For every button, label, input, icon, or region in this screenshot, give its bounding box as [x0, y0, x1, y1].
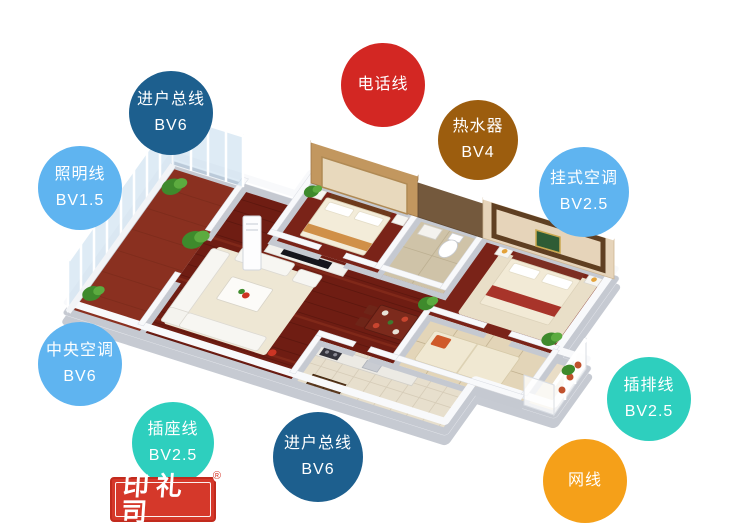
badge-label: 进户总线: [137, 92, 205, 108]
badge-label: BV2.5: [149, 448, 198, 464]
badge-label: 电话线: [357, 77, 408, 93]
badge-layer: 进户总线BV6照明线BV1.5电话线热水器BV4挂式空调BV2.5中央空调BV6…: [0, 0, 737, 530]
badge-label: 照明线: [54, 167, 105, 183]
badge-central-ac: 中央空调BV6: [38, 322, 122, 406]
badge-label: 进户总线: [284, 436, 352, 452]
badge-label: 网线: [568, 473, 602, 489]
badge-label: BV2.5: [625, 404, 674, 420]
badge-label: BV6: [154, 118, 187, 134]
badge-wall-mounted-ac: 挂式空调BV2.5: [539, 147, 629, 237]
infographic-canvas: 进户总线BV6照明线BV1.5电话线热水器BV4挂式空调BV2.5中央空调BV6…: [0, 0, 737, 530]
badge-network-cable: 网线: [543, 439, 627, 523]
badge-incoming-mains-bottom: 进户总线BV6: [273, 412, 363, 502]
badge-telephone-line: 电话线: [341, 43, 425, 127]
badge-label: 插排线: [623, 378, 674, 394]
badge-label: 中央空调: [46, 343, 114, 359]
badge-lighting-line: 照明线BV1.5: [38, 146, 122, 230]
badge-label: BV6: [301, 462, 334, 478]
badge-label: BV1.5: [56, 193, 105, 209]
badge-label: 挂式空调: [550, 171, 618, 187]
badge-label: BV2.5: [560, 197, 609, 213]
registered-trademark-icon: ®: [213, 471, 221, 482]
badge-water-heater: 热水器BV4: [438, 100, 518, 180]
seal-inner-border: 印礼司: [115, 482, 211, 517]
badge-power-strip-line: 插排线BV2.5: [607, 357, 691, 441]
badge-label: 插座线: [147, 422, 198, 438]
badge-incoming-mains-top: 进户总线BV6: [129, 71, 213, 155]
brand-name: 印礼司: [114, 474, 212, 526]
badge-label: BV6: [63, 369, 96, 385]
badge-label: BV4: [461, 145, 494, 161]
badge-label: 热水器: [452, 119, 503, 135]
brand-seal-logo: 印礼司 ®: [110, 477, 216, 522]
